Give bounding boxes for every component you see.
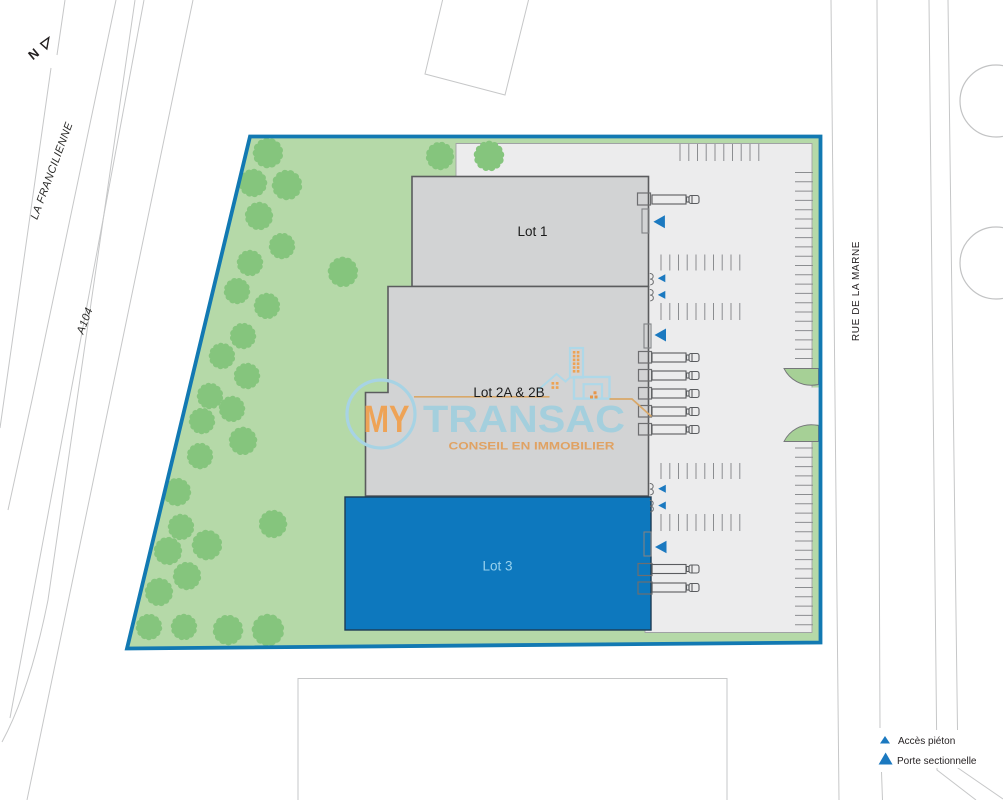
svg-text:RUE DE LA MARNE: RUE DE LA MARNE xyxy=(851,241,862,341)
svg-text:CONSEIL EN IMMOBILIER: CONSEIL EN IMMOBILIER xyxy=(449,441,615,453)
svg-text:Accès piéton: Accès piéton xyxy=(898,736,955,747)
svg-text:Lot 2A & 2B: Lot 2A & 2B xyxy=(473,385,544,400)
svg-text:Porte sectionnelle: Porte sectionnelle xyxy=(897,756,977,767)
svg-text:Lot 3: Lot 3 xyxy=(482,559,512,574)
svg-text:TRANSAC: TRANSAC xyxy=(423,399,625,441)
svg-text:Lot 1: Lot 1 xyxy=(517,224,547,239)
svg-text:MY: MY xyxy=(364,399,410,441)
